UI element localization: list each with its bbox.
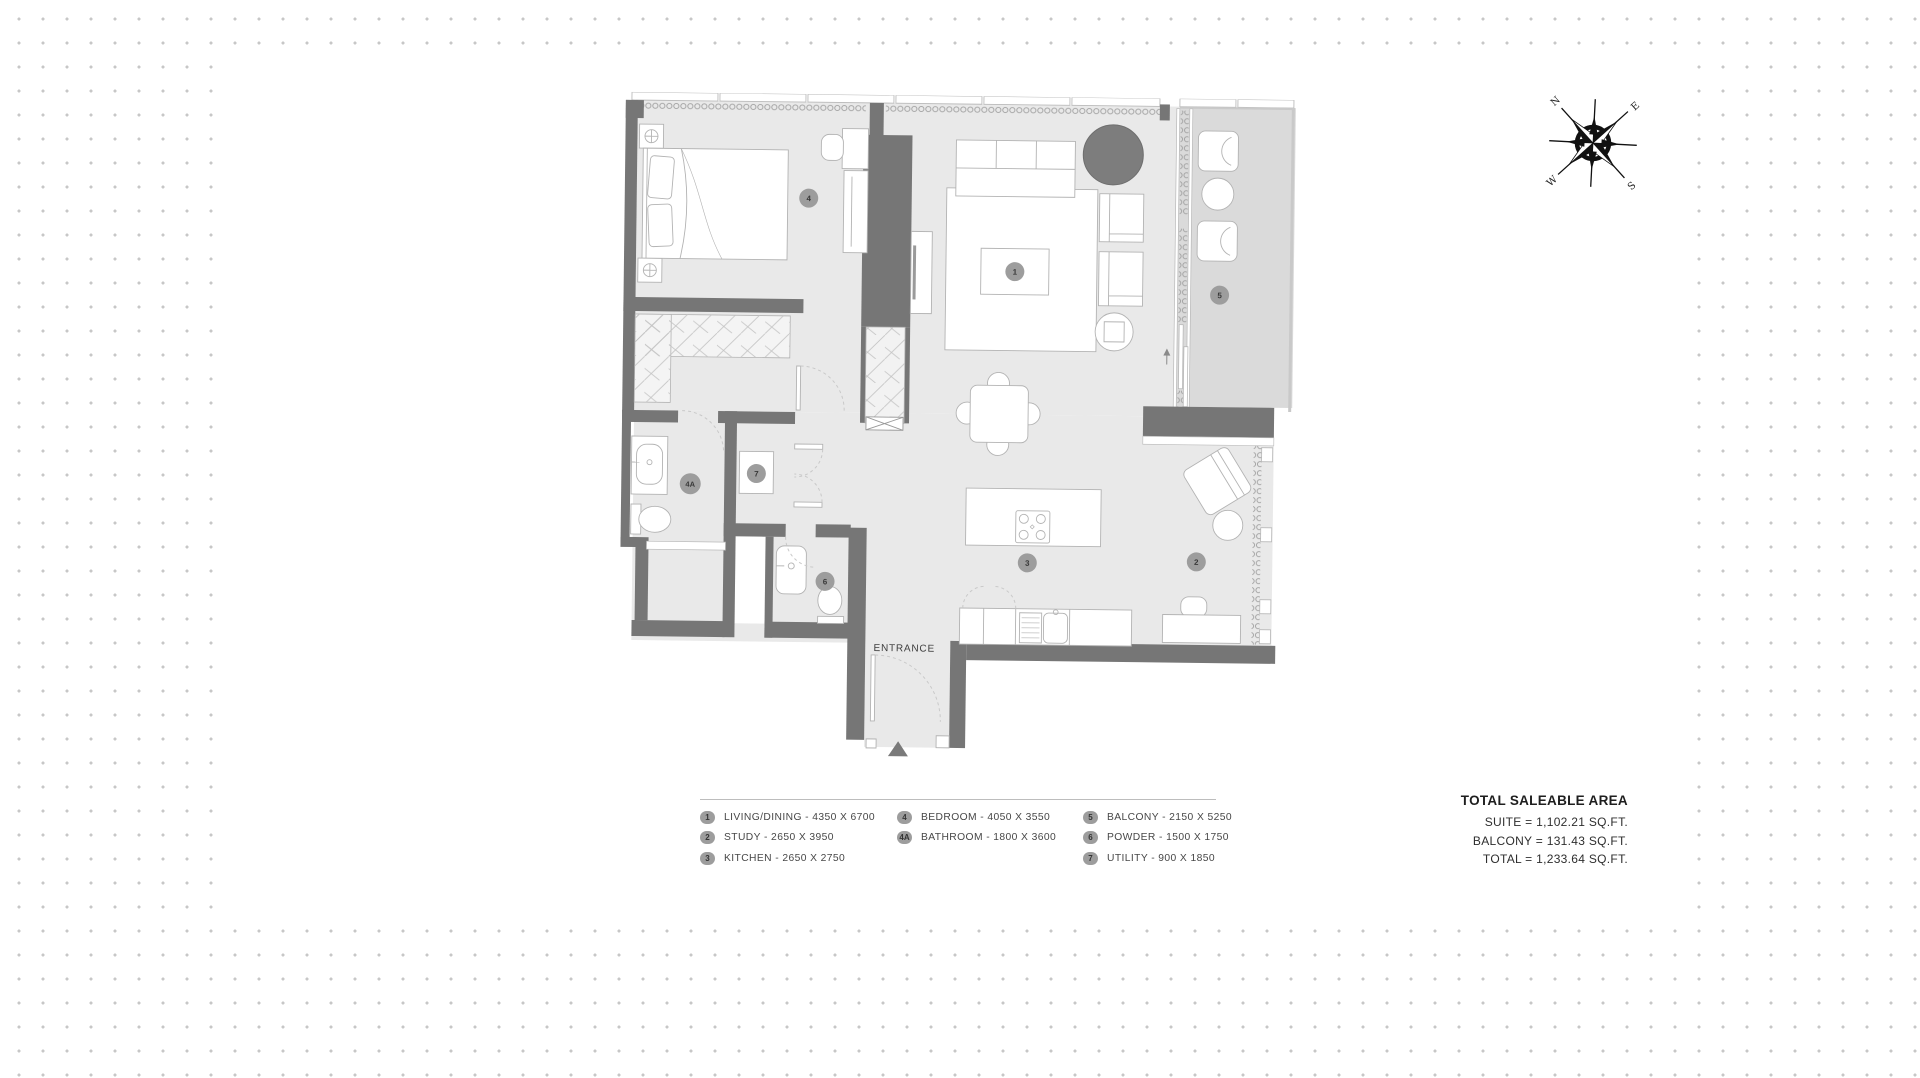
- legend-label: STUDY - 2650 X 3950: [724, 832, 834, 843]
- nightstand-top: [639, 124, 663, 148]
- svg-text:6: 6: [823, 577, 828, 586]
- svg-text:5: 5: [1217, 291, 1222, 300]
- svg-text:7: 7: [754, 469, 759, 478]
- legend-item: 4 BEDROOM - 4050 X 3550: [897, 810, 1077, 824]
- legend-column-2: 4 BEDROOM - 4050 X 3550 4A BATHROOM - 18…: [897, 810, 1077, 851]
- compass-n: N: [1549, 95, 1563, 109]
- bedroom-desk: [843, 171, 868, 253]
- area-summary-total: TOTAL = 1,233.64 SQ.FT.: [1461, 850, 1628, 869]
- compass-w: W: [1545, 174, 1561, 190]
- compass-e: E: [1629, 100, 1642, 113]
- legend-label: BALCONY - 2150 X 5250: [1107, 812, 1232, 823]
- legend-badge: 2: [700, 831, 715, 844]
- balcony-chair-1: [1198, 131, 1238, 171]
- svg-text:4: 4: [806, 194, 811, 203]
- legend-item: 7 UTILITY - 900 X 1850: [1083, 851, 1243, 865]
- legend-item: 1 LIVING/DINING - 4350 X 6700: [700, 810, 890, 824]
- legend-item: 2 STUDY - 2650 X 3950: [700, 831, 890, 845]
- legend-badge: 7: [1083, 852, 1098, 865]
- svg-text:1: 1: [1013, 268, 1018, 277]
- entrance-label: ENTRANCE: [873, 643, 935, 655]
- balcony-table: [1202, 178, 1234, 210]
- legend-item: 6 POWDER - 1500 X 1750: [1083, 831, 1243, 845]
- legend-label: BEDROOM - 4050 X 3550: [921, 812, 1050, 823]
- area-summary-suite: SUITE = 1,102.21 SQ.FT.: [1461, 813, 1628, 832]
- svg-text:2: 2: [1194, 558, 1199, 567]
- living-dark-table: [1083, 124, 1144, 185]
- area-summary-balcony: BALCONY = 131.43 SQ.FT.: [1461, 832, 1628, 851]
- hall-closet: [865, 327, 905, 430]
- tv-console: [910, 231, 932, 313]
- legend-label: POWDER - 1500 X 1750: [1107, 832, 1229, 843]
- sofa: [956, 140, 1076, 197]
- area-summary: TOTAL SALEABLE AREA SUITE = 1,102.21 SQ.…: [1461, 793, 1628, 869]
- legend-column-1: 1 LIVING/DINING - 4350 X 6700 2 STUDY - …: [700, 810, 890, 872]
- legend-item: 4A BATHROOM - 1800 X 3600: [897, 831, 1077, 845]
- legend-column-3: 5 BALCONY - 2150 X 5250 6 POWDER - 1500 …: [1083, 810, 1243, 872]
- legend-badge: 4: [897, 811, 912, 824]
- armchair-2: [1098, 252, 1143, 307]
- compass-star: [1548, 98, 1638, 188]
- balcony-bottom-wall: [1143, 406, 1274, 438]
- study-round-table: [1213, 510, 1243, 540]
- floor-plan: ENTRANCE 1 2 3 4 4A 5 6 7: [616, 92, 1300, 772]
- legend-label: LIVING/DINING - 4350 X 6700: [724, 812, 875, 823]
- bed: [642, 148, 788, 260]
- legend-label: UTILITY - 900 X 1850: [1107, 853, 1215, 864]
- legend-label: KITCHEN - 2650 X 2750: [724, 853, 845, 864]
- legend-badge: 4A: [897, 831, 912, 844]
- legend-item: 5 BALCONY - 2150 X 5250: [1083, 810, 1243, 824]
- page: { "colors": { "wall": "#767676", "floor"…: [0, 0, 1920, 1078]
- legend: 1 LIVING/DINING - 4350 X 6700 2 STUDY - …: [700, 799, 1216, 810]
- balcony-chair-2: [1197, 221, 1237, 261]
- area-summary-title: TOTAL SALEABLE AREA: [1461, 793, 1628, 808]
- kitchen-counter: [959, 608, 1131, 646]
- armchair-1: [1099, 194, 1144, 243]
- legend-badge: 5: [1083, 811, 1098, 824]
- legend-badge: 1: [700, 811, 715, 824]
- bathroom-vanity: [631, 436, 668, 494]
- legend-badge: 6: [1083, 831, 1098, 844]
- svg-text:3: 3: [1025, 559, 1030, 568]
- svg-text:4A: 4A: [685, 480, 695, 489]
- legend-label: BATHROOM - 1800 X 3600: [921, 832, 1056, 843]
- compass-s: S: [1626, 180, 1639, 193]
- legend-divider: [700, 799, 1216, 800]
- powder-sink: [776, 546, 807, 594]
- side-table: [1095, 313, 1133, 351]
- kitchen-island: [966, 488, 1102, 547]
- study-top-sill: [1143, 436, 1274, 446]
- closet-sliding-door: [646, 541, 725, 550]
- compass: N E S W: [1528, 78, 1658, 208]
- legend-item: 3 KITCHEN - 2650 X 2750: [700, 851, 890, 865]
- legend-badge: 3: [700, 852, 715, 865]
- nightstand-bottom: [638, 258, 662, 282]
